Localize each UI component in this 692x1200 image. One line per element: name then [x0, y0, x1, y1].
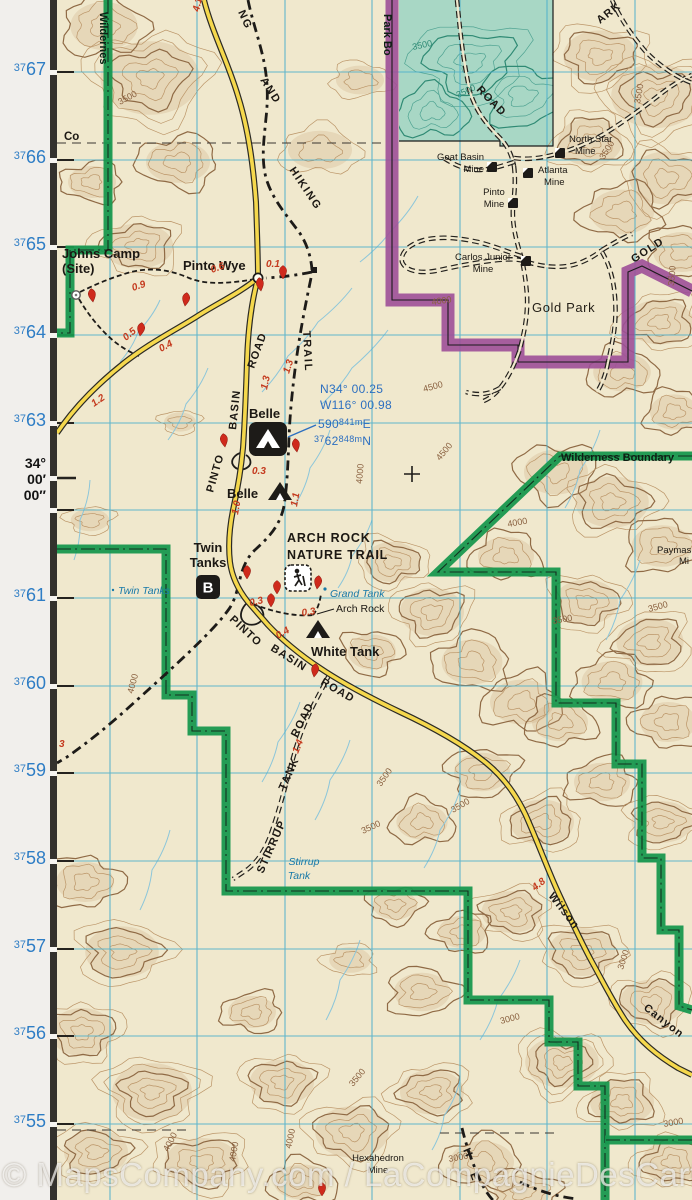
place-label: NATURE TRAIL	[287, 548, 388, 562]
place-label: Arch Rock	[336, 603, 385, 615]
distance-label: 0.1	[266, 259, 280, 270]
mine-icon	[521, 256, 531, 266]
neatline-notch	[50, 596, 57, 601]
terrain-wash	[288, 131, 352, 169]
neatline-notch	[50, 1034, 57, 1039]
grid-label-prefix: 37	[14, 237, 26, 249]
margin-grid-label: 3767	[0, 60, 46, 79]
hiker-trailhead-icon	[285, 565, 311, 591]
terrain-wash	[442, 640, 503, 685]
place-label: Tanks	[190, 555, 227, 570]
campground-icon	[249, 422, 287, 456]
grid-label-prefix: 37	[14, 939, 26, 951]
grid-label-prefix: 37	[14, 150, 26, 162]
road-trail-label: TRAIL	[300, 331, 314, 373]
neatline-notch	[50, 859, 57, 864]
watermark: © MapsCompany.com / LaCompagnieDesCartes…	[2, 1156, 692, 1194]
terrain-wash	[626, 300, 692, 345]
grid-label-digits: 66	[26, 147, 46, 167]
neatline-notch	[50, 333, 57, 338]
latitude-label-line: 34°	[24, 455, 46, 471]
terrain-wash	[85, 926, 159, 977]
grid-label-prefix: 37	[14, 1114, 26, 1126]
terrain-wash	[336, 66, 384, 95]
place-label: Belle	[227, 486, 258, 501]
margin-grid-label: 3759	[0, 761, 46, 780]
topo-map-page: B350035003500350035004000350045004500400…	[0, 0, 692, 1200]
neatline-notch	[50, 476, 57, 481]
latitude-label: 34°00′00″	[24, 455, 46, 503]
distance-label: 3	[59, 739, 65, 750]
grid-label-digits: 55	[26, 1111, 46, 1131]
grid-label-digits: 58	[26, 848, 46, 868]
margin-grid-label: 3755	[0, 1112, 46, 1131]
grid-label-prefix: 37	[14, 763, 26, 775]
grid-label-digits: 63	[26, 410, 46, 430]
mine-label: North Star	[569, 134, 612, 145]
trail-junction-node	[311, 267, 317, 273]
neatline-notch	[50, 508, 57, 513]
mine-label: Mine	[484, 199, 505, 210]
mine-label: Mine	[473, 264, 494, 275]
backcountry-board-icon: B	[196, 575, 220, 599]
grid-label-digits: 57	[26, 936, 46, 956]
gps-longitude: W116° 00.98	[320, 398, 392, 412]
latitude-label-line: 00′	[24, 471, 46, 487]
contour-label: 4000	[354, 463, 366, 484]
neatline-notch	[50, 158, 57, 163]
place-label: Belle	[249, 406, 280, 421]
mine-label: Atlanta	[538, 165, 568, 176]
terrain-wash	[146, 141, 210, 183]
margin-grid-label: 3766	[0, 148, 46, 167]
neatline-notch	[50, 947, 57, 952]
distance-label: 0.3	[301, 606, 317, 619]
neatline-notch	[50, 245, 57, 250]
water-feature-label: Twin Tanks	[118, 585, 171, 597]
mine-label: Carlos Junior	[455, 252, 511, 263]
svg-text:B: B	[203, 580, 214, 597]
gps-latitude: N34° 00.25	[320, 382, 383, 396]
road-trail-label: Wildernes	[97, 12, 109, 64]
mine-label: Mine	[463, 164, 484, 175]
mine-icon	[523, 168, 533, 178]
margin-grid-label: 3763	[0, 411, 46, 430]
latitude-label-line: 00″	[24, 487, 46, 503]
tank-dot	[112, 589, 114, 591]
margin-grid-label: 3756	[0, 1024, 46, 1043]
place-label: Twin	[194, 540, 223, 555]
place-label: Mi	[679, 556, 689, 567]
terrain-wash	[228, 996, 276, 1028]
place-label: ARCH ROCK	[287, 531, 371, 545]
mine-label: Pinto	[483, 187, 505, 198]
grid-label-digits: 65	[26, 234, 46, 254]
grid-label-digits: 56	[26, 1023, 46, 1043]
margin-grid-label: 3764	[0, 323, 46, 342]
margin-grid-label: 3758	[0, 849, 46, 868]
neatline-notch	[50, 684, 57, 689]
neatline-notch	[50, 771, 57, 776]
grid-label-prefix: 37	[14, 62, 26, 74]
neatline-notch	[50, 421, 57, 426]
mine-label: Mine	[575, 146, 596, 157]
topographic-map-canvas: B350035003500350035004000350045004500400…	[0, 0, 692, 1200]
mine-icon	[487, 162, 497, 172]
grid-label-prefix: 37	[14, 325, 26, 337]
place-label: Paymas	[657, 545, 692, 556]
margin-grid-label: 3765	[0, 235, 46, 254]
road-trail-label: Park Bo	[381, 14, 393, 56]
mine-label: Goat Basin	[437, 152, 484, 163]
water-feature-label: Stirrup	[289, 856, 320, 868]
terrain-wash	[56, 862, 114, 902]
grid-label-prefix: 37	[14, 1026, 26, 1038]
margin-grid-label: 3761	[0, 586, 46, 605]
mine-icon	[508, 198, 518, 208]
grid-label-prefix: 37	[14, 676, 26, 688]
contour-label: 3500	[666, 265, 678, 286]
place-label: Wilderness Boundary	[561, 452, 675, 464]
grid-label-digits: 60	[26, 673, 46, 693]
grid-label-digits: 64	[26, 322, 46, 342]
terrain-wash	[574, 763, 630, 801]
grid-label-digits: 67	[26, 59, 46, 79]
distance-label: 0.3	[252, 466, 266, 477]
water-feature-label: Tank	[288, 870, 311, 882]
campsite-dot	[75, 294, 78, 297]
map-content: B350035003500350035004000350045004500400…	[37, 0, 692, 1200]
grid-label-prefix: 37	[14, 851, 26, 863]
place-label: Gold Park	[532, 300, 595, 315]
neatline-notch	[50, 1122, 57, 1127]
place-label: White Tank	[311, 644, 380, 659]
grid-label-digits: 61	[26, 585, 46, 605]
water-feature-label: Grand Tank	[330, 588, 385, 600]
terrain-wash	[532, 703, 588, 741]
margin-grid-label: 3760	[0, 674, 46, 693]
map-neatline-strip	[50, 0, 57, 1200]
map-margin-scale: 3767376637653764376337613760375937583757…	[0, 0, 50, 1200]
grid-label-prefix: 37	[14, 413, 26, 425]
terrain-wash	[329, 947, 371, 973]
grid-label-prefix: 37	[14, 588, 26, 600]
place-label: (Site)	[62, 261, 95, 276]
neatline-notch	[50, 70, 57, 75]
mine-icon	[555, 148, 565, 158]
grid-label-digits: 59	[26, 760, 46, 780]
place-label: Johns Camp	[62, 246, 140, 261]
tank-dot	[323, 587, 326, 590]
mine-label: Mine	[544, 177, 565, 188]
margin-grid-label: 3757	[0, 937, 46, 956]
place-label: Co	[64, 131, 79, 143]
